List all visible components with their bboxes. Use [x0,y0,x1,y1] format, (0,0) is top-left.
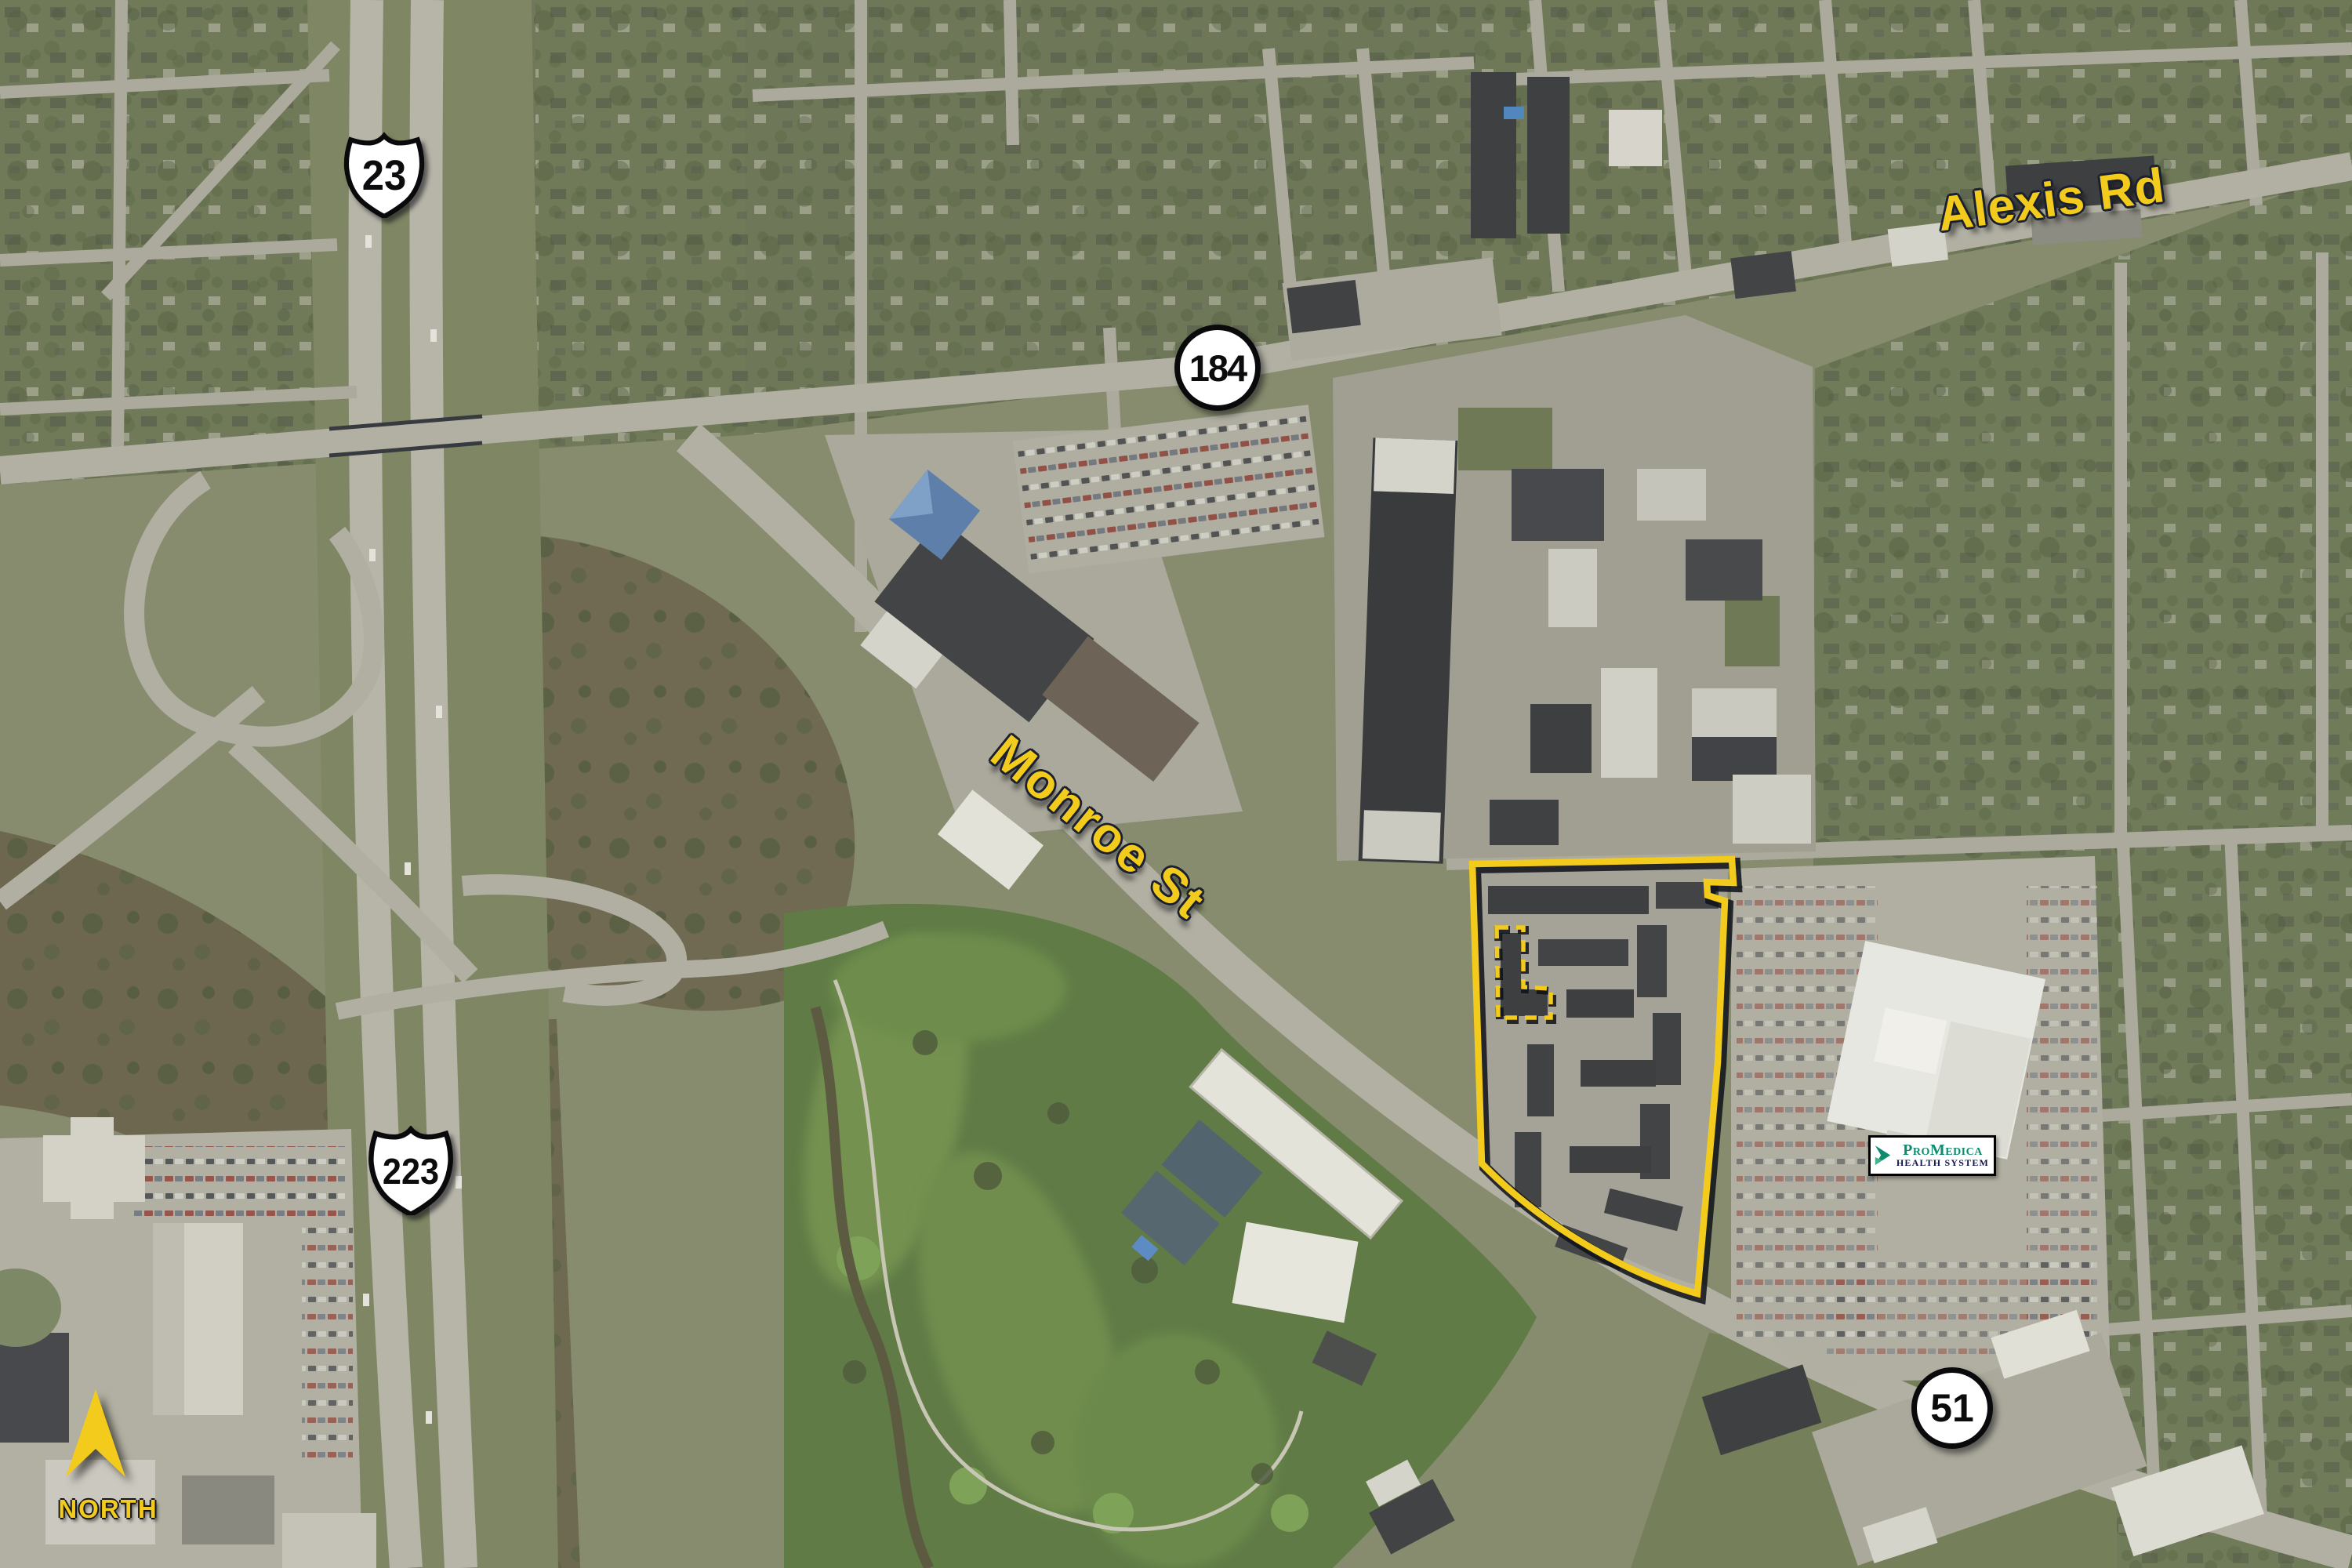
promedica-health-system-sign: ProMedica HEALTH SYSTEM [1868,1135,1996,1176]
aerial-site-map: 23 184 223 51 Alexis Rd Monroe St NORTH … [0,0,2352,1568]
us-223-route-shield: 223 [367,1126,455,1215]
north-arrow-icon [64,1389,127,1482]
promedica-subtitle-text: HEALTH SYSTEM [1896,1158,1989,1168]
satellite-imagery [0,0,2352,1568]
route-number: 223 [369,1126,452,1215]
route-184-shield: 184 [1174,325,1261,411]
route-number: 184 [1189,347,1246,390]
route-number: 51 [1930,1385,1974,1431]
route-51-shield: 51 [1911,1367,1993,1449]
promedica-brand-text: ProMedica [1903,1142,1983,1158]
promedica-logo-icon [1873,1144,1892,1167]
us-23-route-shield: 23 [343,132,425,218]
north-label: NORTH [45,1494,171,1524]
route-number: 23 [346,132,423,218]
